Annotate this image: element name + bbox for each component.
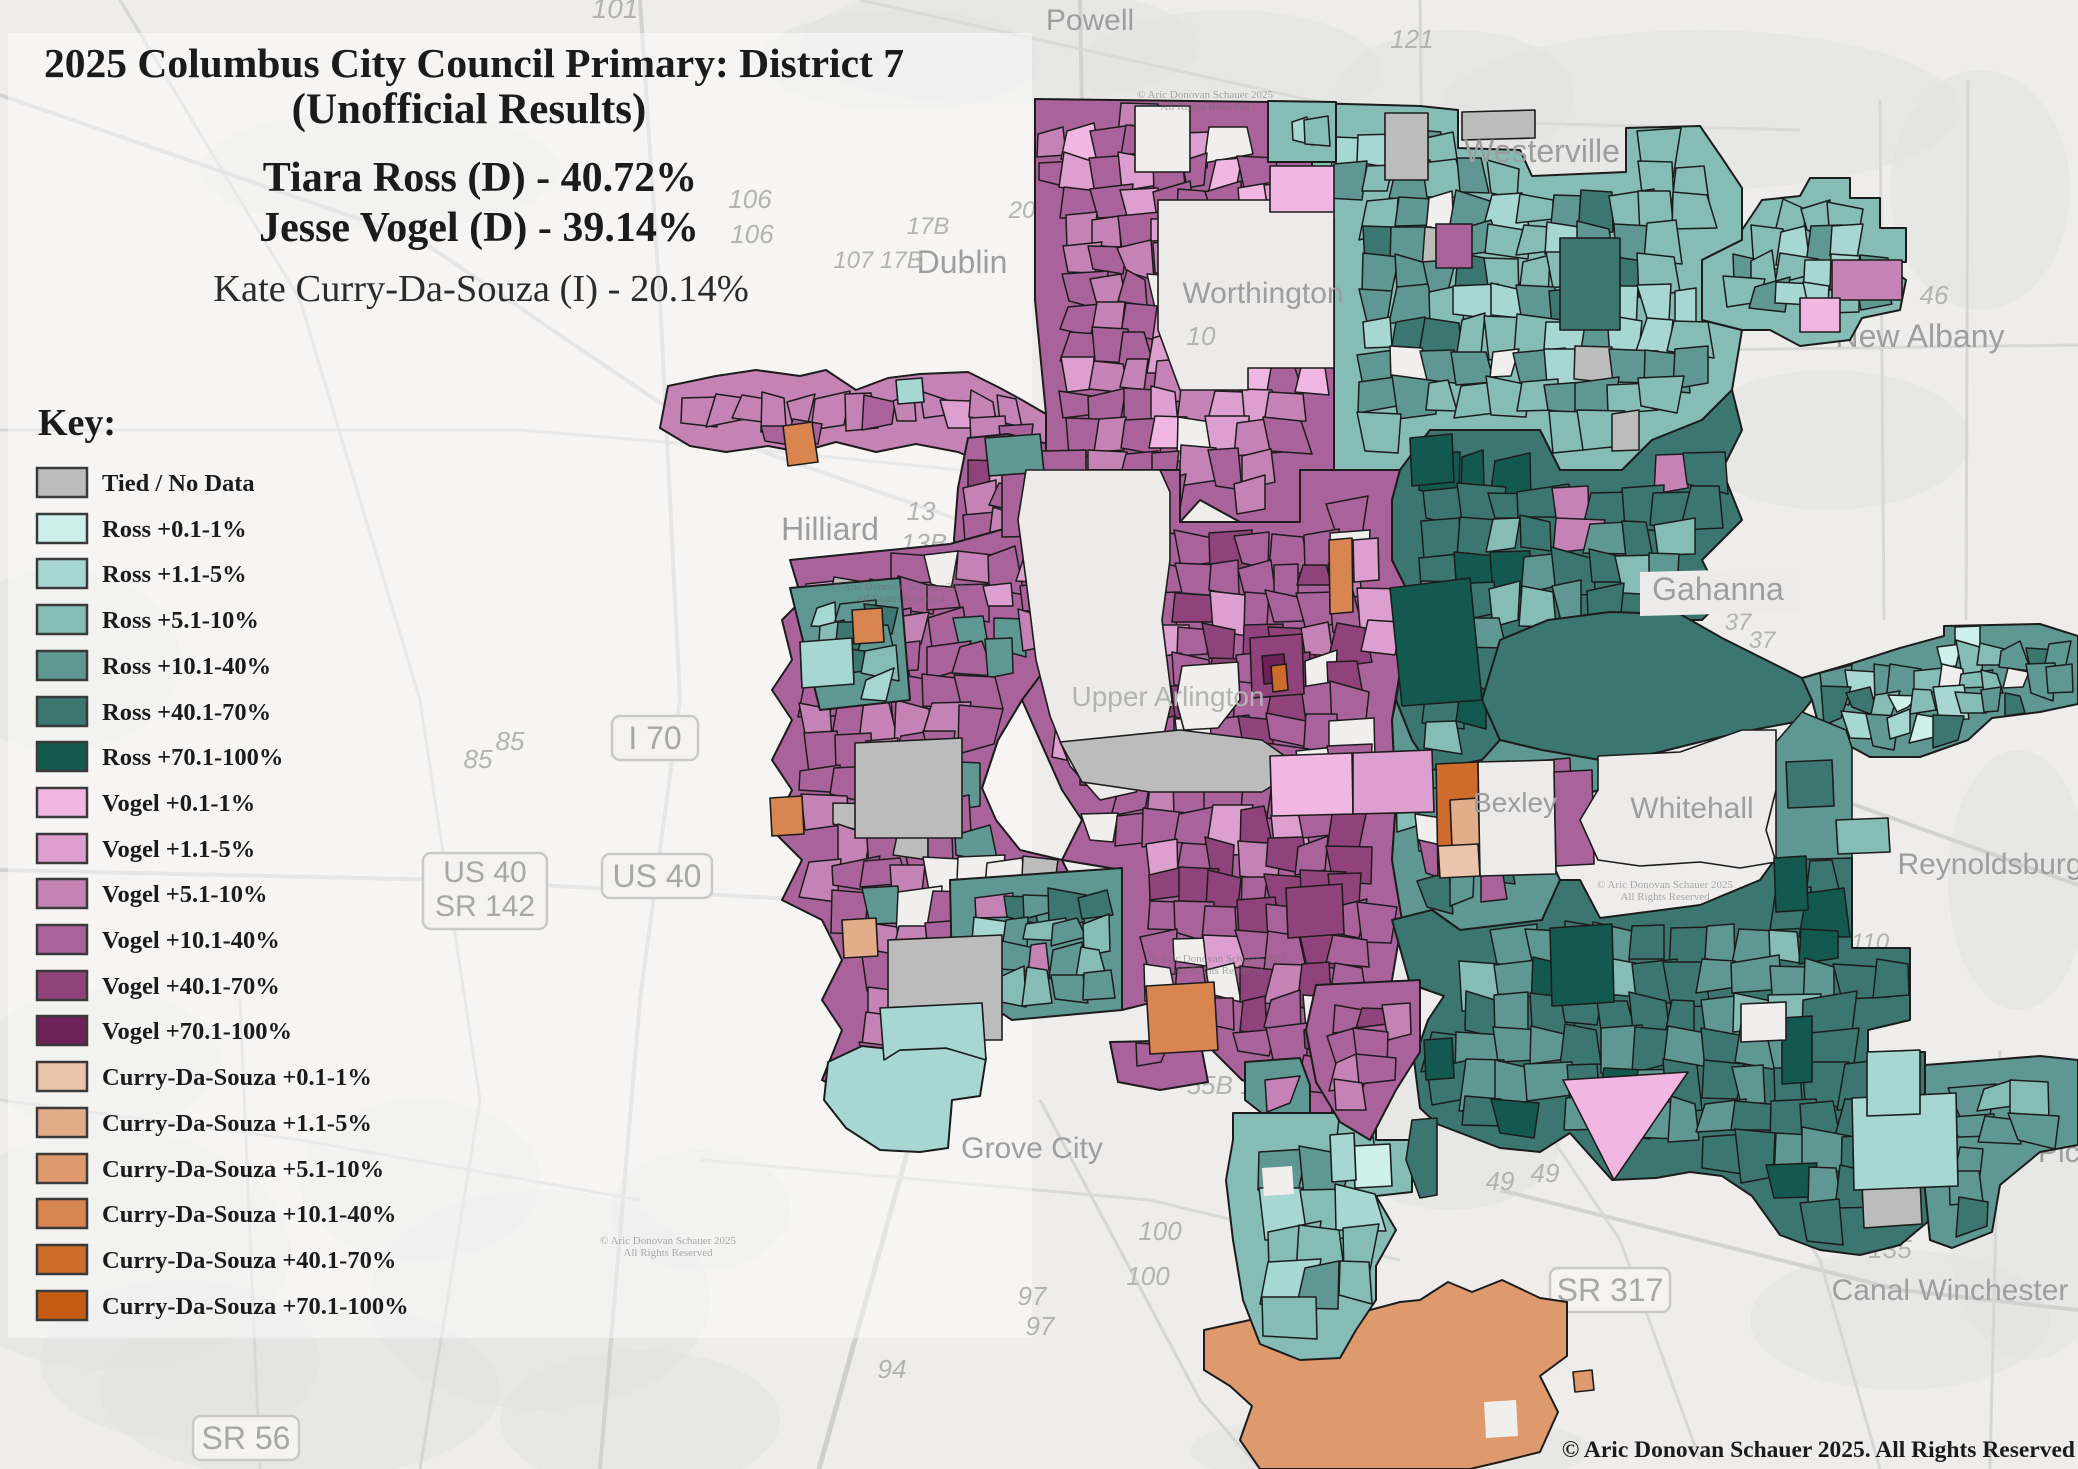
svg-text:100: 100 bbox=[1126, 1261, 1170, 1291]
svg-text:Tiara Ross (D) - 40.72%: Tiara Ross (D) - 40.72% bbox=[263, 155, 697, 201]
svg-text:Ross +70.1-100%: Ross +70.1-100% bbox=[102, 744, 283, 771]
svg-text:US 40: US 40 bbox=[613, 858, 702, 894]
svg-text:New Albany: New Albany bbox=[1836, 318, 2005, 354]
svg-text:Upper Arlington: Upper Arlington bbox=[1071, 681, 1264, 712]
svg-text:Vogel +1.1-5%: Vogel +1.1-5% bbox=[102, 836, 255, 863]
svg-text:107 17B: 107 17B bbox=[833, 247, 922, 274]
svg-text:37: 37 bbox=[1749, 627, 1777, 654]
svg-text:97: 97 bbox=[1018, 1281, 1048, 1311]
svg-text:85: 85 bbox=[496, 726, 525, 756]
svg-text:Canal Winchester: Canal Winchester bbox=[1832, 1274, 2069, 1307]
svg-text:Vogel +40.1-70%: Vogel +40.1-70% bbox=[102, 973, 280, 1000]
svg-text:Kate Curry-Da-Souza (I) - 20.1: Kate Curry-Da-Souza (I) - 20.14% bbox=[213, 268, 749, 310]
svg-text:101: 101 bbox=[592, 0, 639, 24]
svg-text:Hilliard: Hilliard bbox=[781, 511, 879, 547]
svg-text:Vogel +0.1-1%: Vogel +0.1-1% bbox=[102, 790, 255, 817]
svg-text:17B: 17B bbox=[907, 213, 950, 240]
svg-text:Westerville: Westerville bbox=[1464, 133, 1620, 169]
svg-text:I 70: I 70 bbox=[628, 720, 681, 756]
svg-text:SR 317: SR 317 bbox=[1557, 1272, 1664, 1308]
svg-text:100: 100 bbox=[1138, 1216, 1182, 1246]
svg-text:Curry-Da-Souza +0.1-1%: Curry-Da-Souza +0.1-1% bbox=[102, 1064, 372, 1091]
svg-text:Bexley: Bexley bbox=[1473, 787, 1557, 818]
svg-text:106: 106 bbox=[730, 219, 774, 249]
svg-text:All Rights Reserved: All Rights Reserved bbox=[1620, 891, 1710, 903]
svg-text:© Aric Donovan Schauer 2025: © Aric Donovan Schauer 2025 bbox=[1137, 89, 1274, 101]
svg-text:97: 97 bbox=[1026, 1311, 1056, 1341]
svg-text:Curry-Da-Souza +10.1-40%: Curry-Da-Souza +10.1-40% bbox=[102, 1201, 396, 1228]
svg-text:106: 106 bbox=[728, 184, 772, 214]
svg-text:Vogel +5.1-10%: Vogel +5.1-10% bbox=[102, 881, 268, 908]
svg-text:49: 49 bbox=[1486, 1166, 1515, 1196]
svg-text:Tied / No Data: Tied / No Data bbox=[102, 470, 255, 497]
svg-text:Curry-Da-Souza +40.1-70%: Curry-Da-Souza +40.1-70% bbox=[102, 1247, 396, 1274]
svg-text:All Rights Reserved: All Rights Reserved bbox=[1173, 965, 1263, 977]
svg-text:© Aric Donovan Schauer 2025: © Aric Donovan Schauer 2025 bbox=[1597, 879, 1734, 891]
svg-text:10: 10 bbox=[1187, 321, 1216, 351]
svg-text:Curry-Da-Souza +70.1-100%: Curry-Da-Souza +70.1-100% bbox=[102, 1293, 409, 1320]
svg-text:US 40: US 40 bbox=[443, 856, 526, 889]
svg-text:Powell: Powell bbox=[1046, 4, 1134, 37]
svg-text:Vogel +70.1-100%: Vogel +70.1-100% bbox=[102, 1018, 292, 1045]
svg-text:85: 85 bbox=[464, 744, 493, 774]
svg-text:Reynoldsburg: Reynoldsburg bbox=[1897, 848, 2078, 881]
svg-text:20: 20 bbox=[1008, 197, 1036, 224]
svg-text:Gahanna: Gahanna bbox=[1652, 571, 1784, 607]
svg-text:13: 13 bbox=[907, 496, 936, 526]
svg-text:SR 142: SR 142 bbox=[435, 890, 535, 923]
svg-text:Vogel +10.1-40%: Vogel +10.1-40% bbox=[102, 927, 280, 954]
svg-text:Ross +0.1-1%: Ross +0.1-1% bbox=[102, 516, 247, 543]
svg-text:© Aric Donovan Schauer 2025. A: © Aric Donovan Schauer 2025. All Rights … bbox=[1562, 1437, 2075, 1463]
svg-text:Ross +40.1-70%: Ross +40.1-70% bbox=[102, 699, 271, 726]
svg-text:(Unofficial Results): (Unofficial Results) bbox=[292, 86, 647, 133]
svg-text:Ross +1.1-5%: Ross +1.1-5% bbox=[102, 561, 247, 588]
svg-text:© Aric Donovan Schauer 2025: © Aric Donovan Schauer 2025 bbox=[1150, 953, 1287, 965]
svg-text:49: 49 bbox=[1531, 1158, 1560, 1188]
svg-text:94: 94 bbox=[878, 1354, 907, 1384]
svg-text:Curry-Da-Souza +1.1-5%: Curry-Da-Souza +1.1-5% bbox=[102, 1110, 372, 1137]
svg-text:Jesse Vogel (D) - 39.14%: Jesse Vogel (D) - 39.14% bbox=[259, 205, 699, 251]
svg-text:Ross +5.1-10%: Ross +5.1-10% bbox=[102, 607, 259, 634]
svg-text:All Rights Reserved: All Rights Reserved bbox=[1160, 101, 1250, 113]
svg-text:Grove City: Grove City bbox=[961, 1132, 1103, 1165]
svg-text:Worthington: Worthington bbox=[1182, 277, 1343, 310]
svg-text:All Rights Reserved: All Rights Reserved bbox=[623, 1247, 713, 1259]
svg-text:© Aric Donovan Schauer 2025: © Aric Donovan Schauer 2025 bbox=[600, 1235, 737, 1247]
svg-text:121: 121 bbox=[1390, 24, 1433, 54]
svg-text:Dublin: Dublin bbox=[917, 244, 1008, 280]
svg-text:© Aric Donovan Schauer 2025: © Aric Donovan Schauer 2025 bbox=[832, 581, 969, 593]
svg-text:All Rights Reserved: All Rights Reserved bbox=[855, 593, 945, 605]
svg-text:Curry-Da-Souza +5.1-10%: Curry-Da-Souza +5.1-10% bbox=[102, 1156, 384, 1183]
svg-text:Whitehall: Whitehall bbox=[1630, 792, 1753, 825]
svg-text:Key:: Key: bbox=[38, 402, 116, 444]
svg-text:Ross +10.1-40%: Ross +10.1-40% bbox=[102, 653, 271, 680]
svg-text:46: 46 bbox=[1920, 280, 1949, 310]
svg-text:SR 56: SR 56 bbox=[202, 1420, 291, 1456]
svg-text:2025 Columbus City Council Pri: 2025 Columbus City Council Primary: Dist… bbox=[44, 40, 904, 86]
